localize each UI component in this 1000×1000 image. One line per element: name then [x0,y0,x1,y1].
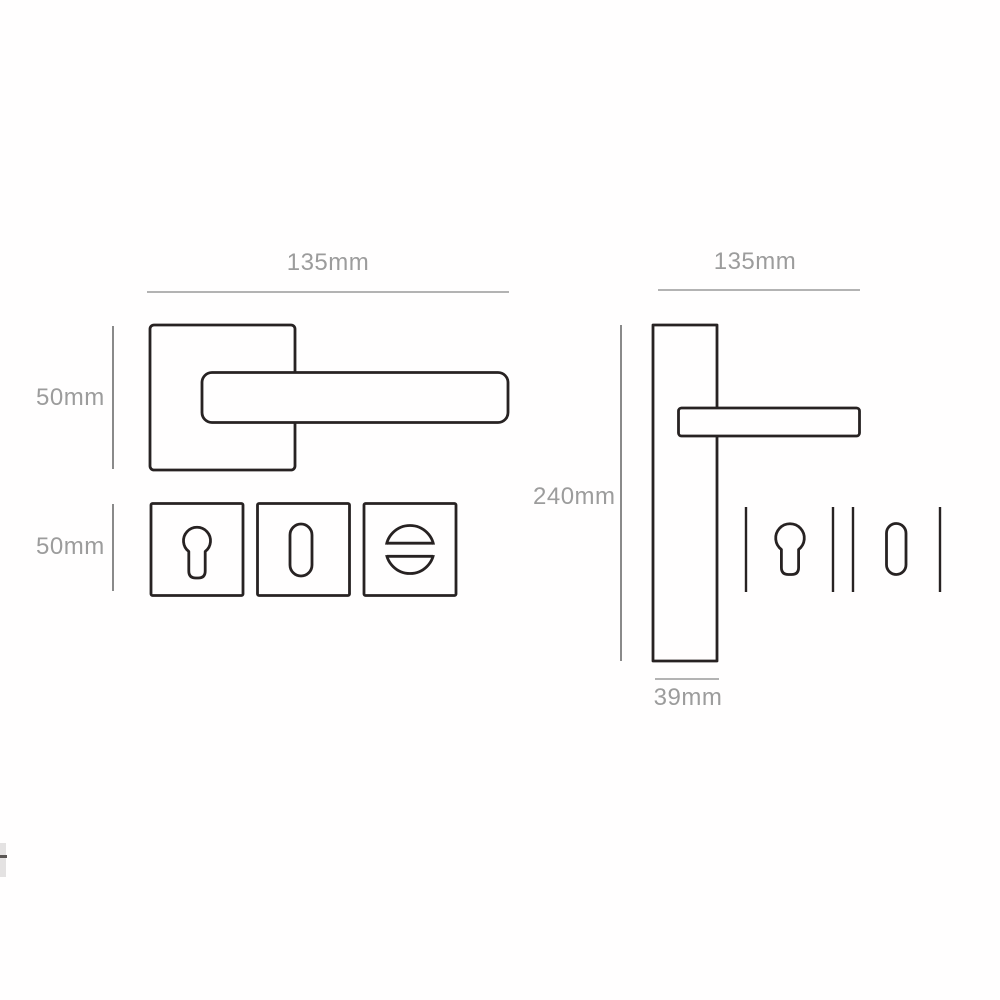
euro-cylinder-cutout-icon [776,524,805,575]
thumbturn-slot-mask [385,545,436,556]
right-height-dim-label: 240mm [533,485,613,509]
euro-cylinder-profile-icon [183,527,210,578]
keyhole-cutout-icon [887,524,907,575]
left-escutcheon-height-dim-label: 50mm [36,535,100,559]
left-width-dim-label: 135mm [263,251,393,275]
left-handle-height-dim-label: 50mm [36,386,100,410]
backplate-lever-handle [679,408,860,436]
scan-artifact-dash [0,855,7,858]
lever-handle [202,373,508,423]
right-plate-width-dim-label: 39mm [627,686,749,710]
drawing-canvas: 135mm 50mm 50mm 135mm 240mm 39mm [0,0,1000,1000]
right-width-dim-label: 135mm [690,250,820,274]
backplate [653,325,717,661]
scan-artifact-strip [0,843,6,877]
linework-svg [0,0,1000,1000]
keyhole-slot-icon [290,524,312,576]
